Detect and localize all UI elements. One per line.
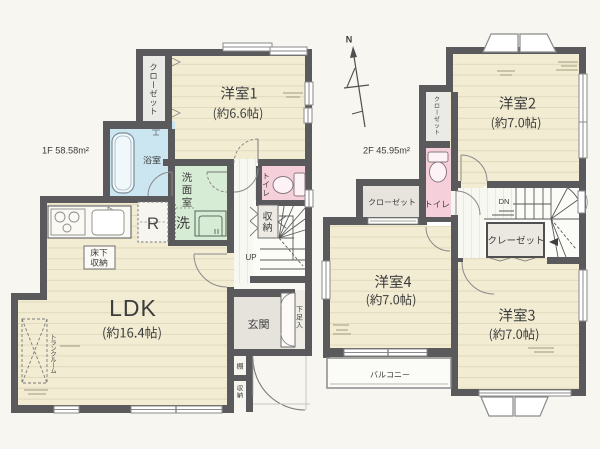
- svg-text:DN: DN: [499, 197, 510, 206]
- svg-text:2F 45.95m²: 2F 45.95m²: [363, 145, 410, 155]
- svg-text:UP: UP: [245, 253, 256, 262]
- svg-text:N: N: [346, 34, 353, 44]
- svg-text:LDK: LDK: [109, 295, 157, 321]
- svg-text:1F 58.58m²: 1F 58.58m²: [42, 145, 89, 155]
- svg-text:R: R: [147, 214, 159, 233]
